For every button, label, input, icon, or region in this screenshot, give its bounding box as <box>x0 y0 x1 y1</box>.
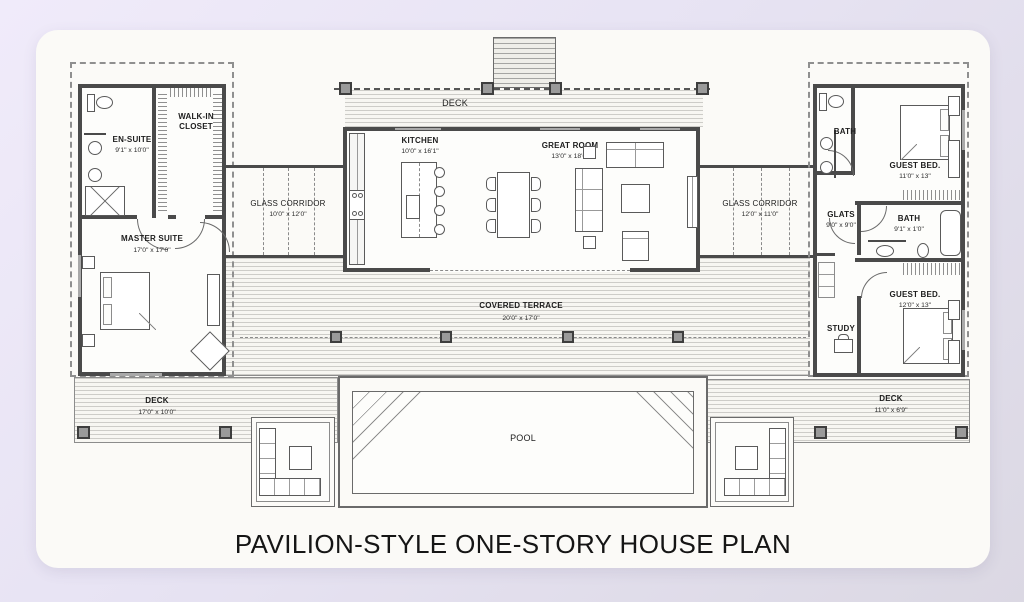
closet-box <box>948 340 960 364</box>
dining-chair <box>531 219 541 233</box>
wall <box>855 201 961 205</box>
wall <box>205 215 222 219</box>
dining-chair <box>486 219 496 233</box>
side-table <box>583 146 596 159</box>
sofa <box>606 142 664 168</box>
pillow <box>103 304 112 325</box>
blanket-fold <box>139 313 156 330</box>
corridor-beam <box>226 255 343 258</box>
window <box>78 255 81 297</box>
wall <box>855 258 961 262</box>
blanket-fold <box>901 144 917 160</box>
burner <box>352 193 357 198</box>
room-label-study: STUDY <box>827 324 855 334</box>
room-dims-glass-corridor-right: 12'0" x 11'0" <box>742 211 779 219</box>
room-label-deck-top: DECK <box>442 98 468 108</box>
corridor-glass-line <box>789 168 790 255</box>
guest-bed <box>903 308 953 364</box>
dining-chair <box>531 177 541 191</box>
dresser <box>207 274 220 326</box>
sink-icon <box>876 245 894 257</box>
room-label-pool: POOL <box>510 433 536 443</box>
sink-icon <box>88 168 102 182</box>
deck-top-post <box>549 82 562 95</box>
coffee-table <box>621 184 650 213</box>
closet-rail <box>903 190 961 200</box>
room-dims-deck-right: 11'0" x 6'9" <box>875 407 908 415</box>
room-dims-glats: 9'0" x 9'0" <box>826 222 856 230</box>
deck-top-post <box>696 82 709 95</box>
deck-left-post <box>219 426 232 439</box>
deck-right-post <box>814 426 827 439</box>
closet-rail <box>158 94 167 212</box>
terrace-post <box>330 331 342 343</box>
room-label-deck-left: DECK <box>145 396 168 406</box>
wall <box>868 240 906 242</box>
bar-stool <box>434 205 445 216</box>
toilet-icon <box>917 243 929 258</box>
wall <box>834 130 836 178</box>
room-label-guest-bed-top: GUEST BED. <box>890 161 941 171</box>
wall <box>152 88 156 218</box>
deck-top-area <box>345 90 703 127</box>
room-dims-en-suite: 9'1" x 10'0" <box>115 147 149 155</box>
room-label-kitchen: KITCHEN <box>402 136 439 146</box>
study-closet <box>818 262 835 298</box>
deck-top-post <box>481 82 494 95</box>
wall <box>817 253 835 256</box>
closet-rail <box>903 263 961 275</box>
room-label-bath-top: BATH <box>834 127 856 137</box>
plan-title: PAVILION-STYLE ONE-STORY HOUSE PLAN <box>36 529 990 560</box>
window <box>962 110 965 150</box>
sectional-sofa <box>259 478 321 496</box>
floor-plan: COVERED TERRACE 20'0" x 17'0" DECK 17'0"… <box>0 0 1024 602</box>
kitchen-island <box>401 162 437 238</box>
room-dims-guest-bed-bottom: 12'0" x 13" <box>899 302 931 310</box>
nightstand <box>82 256 95 269</box>
room-dims-glass-corridor-left: 10'0" x 12'0" <box>269 211 306 219</box>
window <box>640 128 680 130</box>
armchair <box>622 231 649 261</box>
toilet-icon <box>96 96 113 109</box>
closet-box <box>948 96 960 116</box>
bathtub-icon <box>940 210 961 256</box>
wall <box>84 133 106 135</box>
sink-icon <box>88 141 102 155</box>
terrace-post <box>562 331 574 343</box>
room-dims-bath-mid: 9'1" x 1'0" <box>894 226 924 234</box>
toilet-icon <box>819 93 827 111</box>
study-desk <box>834 339 853 353</box>
window <box>962 310 965 350</box>
pillow <box>103 277 112 298</box>
room-dims-covered-terrace: 20'0" x 17'0" <box>502 315 539 323</box>
room-label-guest-bed-bottom: GUEST BED. <box>890 290 941 300</box>
sofa <box>575 168 603 232</box>
room-label-deck-right: DECK <box>879 394 902 404</box>
room-dims-kitchen: 10'0" x 16'1" <box>401 148 438 156</box>
desk-chair <box>838 334 849 340</box>
room-dims-guest-bed-top: 11'0" x 13" <box>899 173 931 181</box>
burner <box>358 193 363 198</box>
dining-chair <box>486 177 496 191</box>
room-label-master-suite: MASTER SUITE <box>121 234 183 244</box>
pool-steps-right <box>623 392 693 462</box>
shower-icon <box>85 186 125 216</box>
dining-chair <box>486 198 496 212</box>
lounge-platform-right <box>710 417 794 507</box>
guest-bed <box>900 105 950 160</box>
room-label-en-suite: EN-SUITE <box>113 135 152 145</box>
nightstand <box>82 334 95 347</box>
room-dims-deck-left: 17'0" x 10'0" <box>138 409 175 417</box>
corridor-glass-line <box>733 168 734 255</box>
room-label-covered-terrace: COVERED TERRACE <box>479 301 562 311</box>
corridor-beam <box>700 165 813 168</box>
corridor-glass-line <box>263 168 264 255</box>
blanket-fold <box>904 347 920 363</box>
page-background: COVERED TERRACE 20'0" x 17'0" DECK 17'0"… <box>0 0 1024 602</box>
corridor-beam <box>700 255 813 258</box>
room-dims-master-suite: 17'0" x 17'0" <box>133 247 170 255</box>
patio-table <box>289 446 312 470</box>
toilet-icon <box>87 94 95 112</box>
closet-rail <box>170 88 212 97</box>
chimney <box>493 37 556 88</box>
island-sink <box>406 195 420 219</box>
side-table <box>583 236 596 249</box>
sectional-sofa <box>724 478 786 496</box>
sink-icon <box>820 137 833 150</box>
master-bed <box>100 272 150 330</box>
room-label-glass-corridor-right: GLASS CORRIDOR <box>722 199 797 209</box>
room-label-glass-corridor-left: GLASS CORRIDOR <box>250 199 325 209</box>
terrace-opening-dash <box>430 270 630 271</box>
room-label-glats: GLATS <box>827 210 855 220</box>
corridor-glass-line <box>314 168 315 255</box>
room-label-walk-in-closet: WALK-IN CLOSET <box>170 112 222 132</box>
deck-top-post <box>339 82 352 95</box>
corridor-beam <box>226 165 343 168</box>
media-console <box>687 176 698 228</box>
bar-stool <box>434 186 445 197</box>
burner <box>358 211 363 216</box>
terrace-post <box>440 331 452 343</box>
room-label-bath-mid: BATH <box>898 214 920 224</box>
pool-steps-left <box>353 392 423 462</box>
terrace-post <box>672 331 684 343</box>
bar-stool <box>434 224 445 235</box>
cooktop <box>349 190 365 220</box>
closet-box <box>948 300 960 320</box>
toilet-icon <box>828 95 844 108</box>
wall <box>857 296 861 373</box>
dining-chair <box>531 198 541 212</box>
bar-stool <box>434 167 445 178</box>
lounge-platform-left <box>251 417 335 507</box>
terrace-roof-dash-line <box>240 337 806 338</box>
patio-table <box>735 446 758 470</box>
sink-icon <box>820 161 833 174</box>
window <box>395 128 441 130</box>
window <box>540 128 580 130</box>
deck-left-post <box>77 426 90 439</box>
window <box>110 373 162 376</box>
closet-box <box>948 140 960 178</box>
deck-right-post <box>955 426 968 439</box>
dining-table <box>497 172 530 238</box>
deck-top-dash-line <box>334 88 710 90</box>
burner <box>352 211 357 216</box>
